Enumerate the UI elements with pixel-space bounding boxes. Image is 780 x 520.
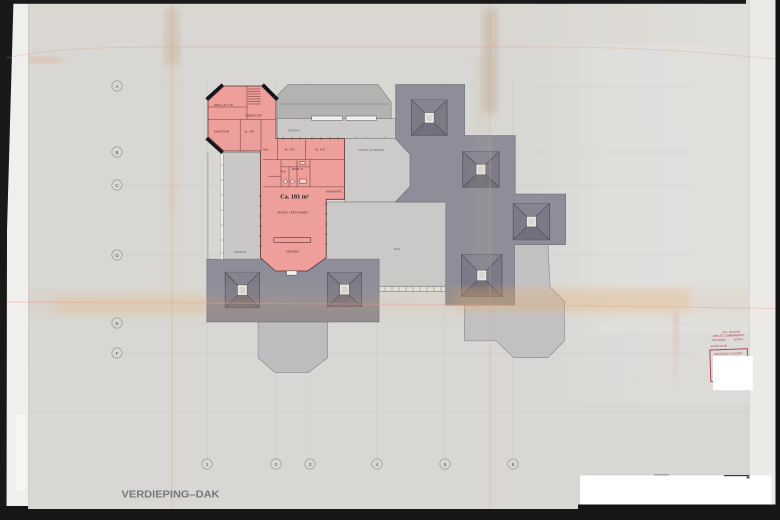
svg-text:WASRUIMTE: WASRUIMTE <box>326 189 342 193</box>
svg-text:F: F <box>116 351 119 356</box>
svg-text:B: B <box>115 150 118 155</box>
svg-text:6: 6 <box>512 462 515 467</box>
svg-text:OVERLOOP: OVERLOOP <box>245 113 262 117</box>
svg-text:2: 2 <box>275 462 278 467</box>
svg-text:W.R: W.R <box>280 170 285 174</box>
svg-text:TERRAS: TERRAS <box>288 128 301 132</box>
svg-text:SL. KR: SL. KR <box>244 130 255 134</box>
svg-text:TERRAS: TERRAS <box>234 250 247 254</box>
svg-text:4: 4 <box>376 462 379 467</box>
svg-text:3: 3 <box>309 462 312 467</box>
svg-text:1: 1 <box>206 462 209 467</box>
svg-text:TECHN. RUIMTEN: TECHN. RUIMTEN <box>358 148 384 152</box>
svg-text:HAL: HAL <box>263 147 269 151</box>
svg-text:SL. K.R: SL. K.R <box>315 147 325 151</box>
svg-text:Ca. 181 m²: Ca. 181 m² <box>280 194 309 201</box>
svg-text:KEUKEN: KEUKEN <box>286 250 299 254</box>
svg-text:AFD.ROEG: AFD.ROEG <box>712 338 726 342</box>
svg-text:SL. K.R: SL. K.R <box>285 147 295 151</box>
svg-text:26-510-29-86: 26-510-29-86 <box>711 344 728 349</box>
svg-text:BADK. R: BADK. R <box>292 167 303 171</box>
svg-text:DAK: DAK <box>394 247 401 251</box>
svg-text:WAS- LIN. K.R: WAS- LIN. K.R <box>214 103 233 107</box>
svg-text:5: 5 <box>444 462 447 467</box>
svg-text:KANTOOR: KANTOOR <box>214 130 230 134</box>
svg-text:2/3/'01+: 2/3/'01+ <box>734 337 744 341</box>
svg-text:VERDIEPING–DAK: VERDIEPING–DAK <box>122 490 221 501</box>
svg-text:WOON- / EETKAMER: WOON- / EETKAMER <box>277 211 308 215</box>
